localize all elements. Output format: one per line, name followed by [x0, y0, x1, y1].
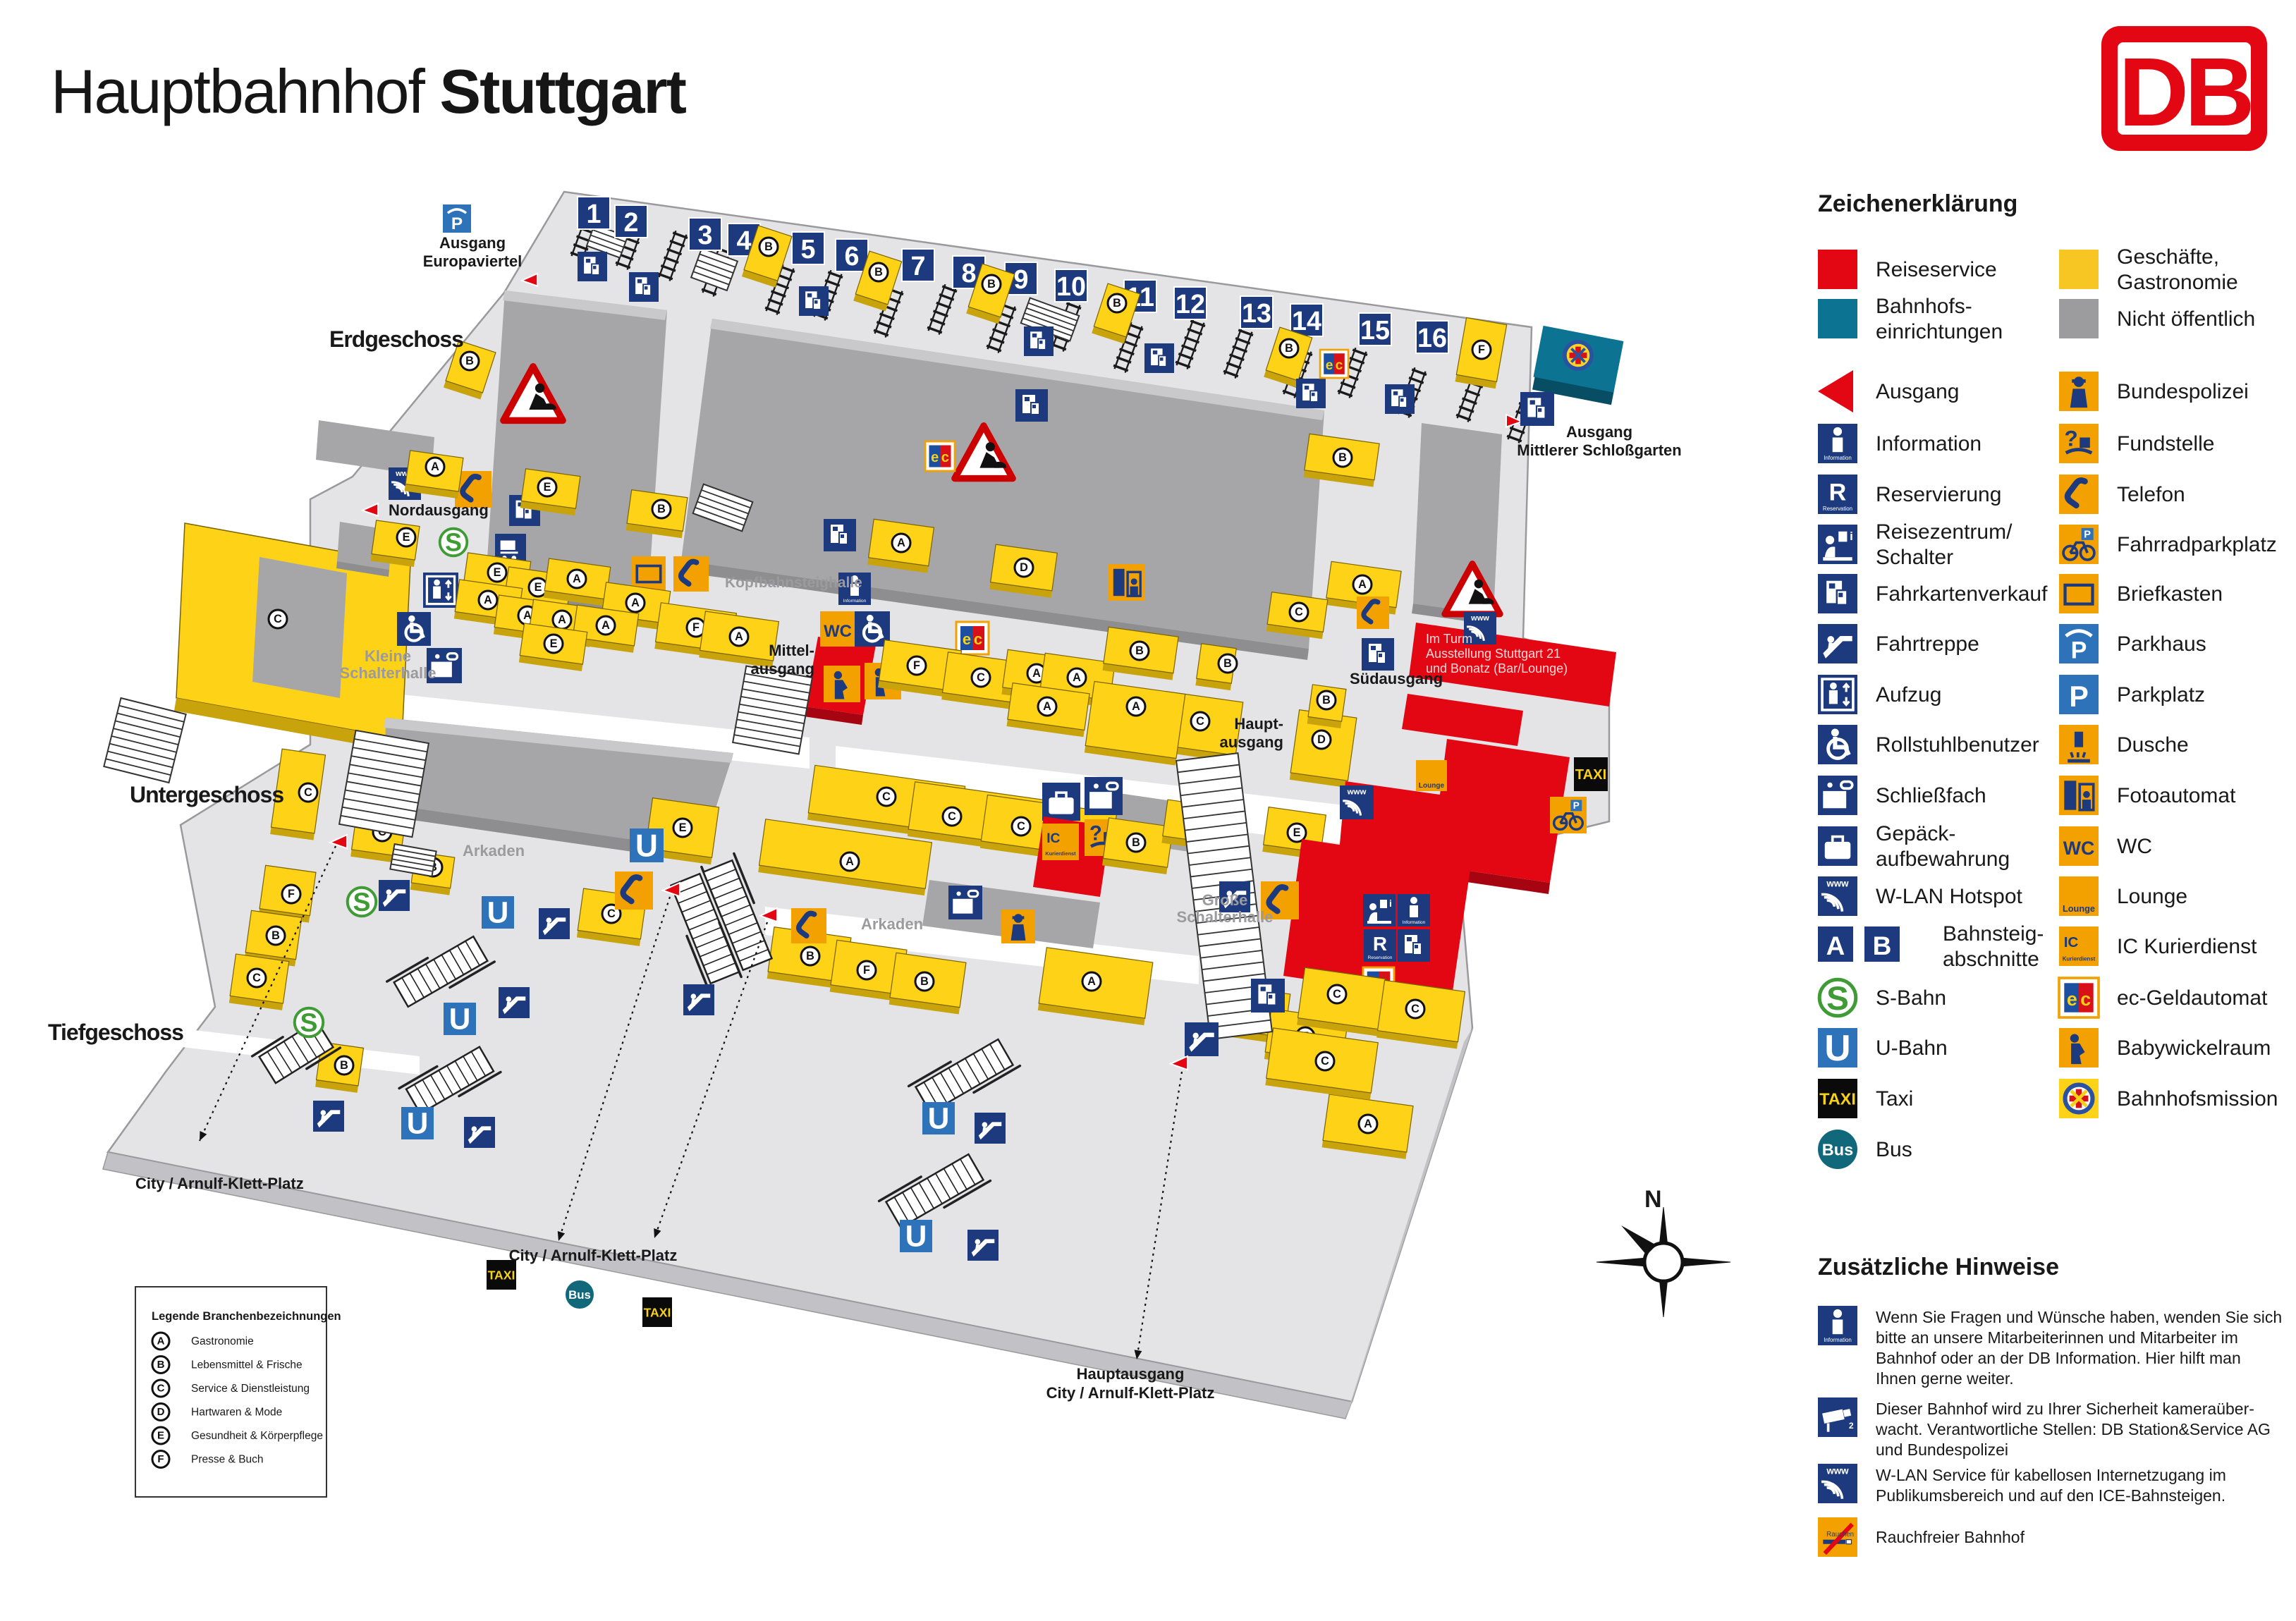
svg-text:TAXI: TAXI — [1575, 767, 1606, 783]
svg-text:Wenn Sie Fragen und Wünsche ha: Wenn Sie Fragen und Wünsche haben, wende… — [1876, 1308, 2282, 1326]
svg-text:abschnitte: abschnitte — [1943, 948, 2039, 971]
svg-text:B: B — [806, 950, 814, 962]
svg-text:?: ? — [2064, 426, 2077, 451]
svg-text:Ausgang: Ausgang — [439, 234, 506, 252]
svg-text:A: A — [1358, 578, 1367, 591]
svg-text:ec-Geldautomat: ec-Geldautomat — [2117, 986, 2268, 1010]
svg-text:B: B — [657, 503, 666, 515]
svg-text:S: S — [300, 1008, 318, 1037]
svg-text:14: 14 — [1292, 306, 1321, 336]
svg-text:Gesundheit & Körperpflege: Gesundheit & Körperpflege — [191, 1430, 323, 1442]
svg-text:B: B — [1285, 342, 1293, 355]
svg-text:www: www — [1470, 614, 1489, 623]
svg-text:A: A — [484, 594, 492, 606]
svg-text:A: A — [631, 597, 640, 609]
svg-text:C: C — [1017, 820, 1025, 833]
svg-text:D: D — [157, 1406, 165, 1418]
svg-text:TAXI: TAXI — [1819, 1089, 1856, 1108]
svg-text:Erdgeschoss: Erdgeschoss — [329, 326, 463, 352]
svg-text:B: B — [1338, 451, 1347, 464]
svg-text:C: C — [948, 810, 956, 823]
svg-text:A: A — [1364, 1118, 1372, 1130]
svg-text:E: E — [494, 566, 501, 579]
svg-text:Bus: Bus — [568, 1288, 591, 1302]
svg-text:E: E — [157, 1430, 164, 1442]
svg-text:City / Arnulf-Klett-Platz: City / Arnulf-Klett-Platz — [135, 1175, 304, 1192]
svg-text:Nordausgang: Nordausgang — [389, 501, 489, 519]
svg-text:Dusche: Dusche — [2117, 733, 2189, 757]
svg-text:E: E — [535, 581, 542, 594]
svg-text:C: C — [157, 1383, 165, 1395]
svg-text:Schalter: Schalter — [1876, 546, 1953, 569]
svg-text:IC Kurierdienst: IC Kurierdienst — [2117, 935, 2257, 958]
svg-text:F: F — [692, 621, 700, 634]
svg-text:A: A — [1073, 671, 1081, 684]
svg-text:Parkplatz: Parkplatz — [2117, 683, 2205, 706]
svg-text:F: F — [913, 659, 920, 672]
svg-text:N: N — [1644, 1186, 1662, 1213]
svg-text:B: B — [920, 975, 929, 988]
svg-text:S: S — [445, 529, 462, 557]
svg-text:C: C — [607, 907, 616, 920]
svg-text:P: P — [1573, 800, 1580, 811]
svg-text:E: E — [1293, 826, 1301, 839]
svg-text:Aufzug: Aufzug — [1876, 683, 1941, 706]
svg-text:B: B — [1223, 657, 1232, 670]
svg-text:Schließfach: Schließfach — [1876, 784, 1986, 807]
svg-text:Zusätzliche Hinweise: Zusätzliche Hinweise — [1818, 1254, 2059, 1280]
svg-text:ausgang: ausgang — [1220, 733, 1283, 751]
svg-text:E: E — [679, 821, 687, 834]
svg-text:TAXI: TAXI — [644, 1305, 671, 1319]
svg-text:und Bundespolizei: und Bundespolizei — [1876, 1440, 2008, 1459]
svg-text:c: c — [974, 630, 982, 648]
svg-text:A: A — [1826, 931, 1845, 960]
svg-text:Reiseservice: Reiseservice — [1876, 258, 1997, 281]
svg-text:Ihnen gerne weiter.: Ihnen gerne weiter. — [1876, 1369, 2014, 1388]
svg-text:Tiefgeschoss: Tiefgeschoss — [48, 1020, 183, 1045]
svg-text:S: S — [353, 887, 371, 917]
svg-text:U: U — [449, 1003, 471, 1036]
svg-text:Reisezentrum/: Reisezentrum/ — [1876, 520, 2013, 544]
svg-text:Untergeschoss: Untergeschoss — [130, 782, 283, 807]
svg-text:B: B — [157, 1359, 165, 1371]
svg-text:U: U — [407, 1107, 429, 1140]
svg-text:A: A — [431, 460, 439, 473]
svg-text:13: 13 — [1242, 298, 1271, 328]
svg-text:15: 15 — [1360, 315, 1390, 345]
svg-text:9: 9 — [1014, 264, 1029, 294]
svg-text:Information: Information — [1876, 432, 1981, 455]
svg-text:Nicht öffentlich: Nicht öffentlich — [2117, 307, 2255, 331]
svg-text:B: B — [987, 278, 996, 290]
svg-text:A: A — [573, 573, 581, 585]
svg-text:5: 5 — [801, 234, 816, 264]
svg-text:Taxi: Taxi — [1876, 1087, 1913, 1111]
svg-text:F: F — [1478, 343, 1485, 356]
svg-text:W-LAN Service für kabellosen I: W-LAN Service für kabellosen Internetzug… — [1876, 1466, 2226, 1484]
svg-text:Mittlerer Schloßgarten: Mittlerer Schloßgarten — [1517, 441, 1681, 459]
svg-text:einrichtungen: einrichtungen — [1876, 320, 2003, 343]
svg-text:A: A — [157, 1335, 165, 1347]
svg-text:D: D — [1317, 733, 1326, 746]
svg-text:ausgang: ausgang — [751, 660, 814, 678]
svg-text:C: C — [1196, 715, 1204, 728]
svg-text:Fotoautomat: Fotoautomat — [2117, 784, 2236, 807]
svg-text:A: A — [1043, 700, 1051, 713]
svg-text:A: A — [735, 630, 743, 643]
svg-text:A: A — [1087, 975, 1096, 988]
svg-text:e: e — [1326, 358, 1333, 373]
svg-text:16: 16 — [1417, 323, 1447, 353]
svg-text:Kopfbahnsteighalle: Kopfbahnsteighalle — [725, 575, 862, 591]
svg-text:U: U — [635, 828, 658, 863]
svg-text:Telefon: Telefon — [2117, 483, 2185, 506]
svg-text:Information: Information — [843, 599, 867, 604]
svg-text:Parkhaus: Parkhaus — [2117, 632, 2206, 656]
svg-text:B: B — [1113, 297, 1121, 310]
svg-text:U-Bahn: U-Bahn — [1876, 1036, 1948, 1060]
svg-text:Geschäfte,: Geschäfte, — [2117, 245, 2219, 269]
svg-text:Reservation: Reservation — [1368, 955, 1393, 960]
svg-text:Presse & Buch: Presse & Buch — [191, 1454, 264, 1466]
svg-text:?: ? — [1089, 821, 1102, 845]
svg-text:C: C — [304, 786, 312, 799]
svg-text:E: E — [403, 531, 410, 544]
svg-text:Reservierung: Reservierung — [1876, 483, 2001, 506]
svg-text:C: C — [1295, 606, 1303, 618]
svg-text:3: 3 — [698, 220, 713, 250]
svg-text:R: R — [1829, 479, 1847, 506]
svg-text:e: e — [963, 630, 971, 648]
svg-text:c: c — [2080, 989, 2091, 1010]
svg-text:City / Arnulf-Klett-Platz: City / Arnulf-Klett-Platz — [509, 1247, 678, 1264]
svg-text:2: 2 — [1849, 1421, 1854, 1431]
svg-text:e: e — [931, 450, 939, 465]
svg-text:B: B — [1135, 644, 1144, 657]
svg-text:P: P — [2069, 680, 2089, 713]
svg-text:B: B — [271, 929, 280, 942]
svg-text:A: A — [1032, 667, 1041, 680]
svg-text:Europaviertel: Europaviertel — [423, 252, 523, 270]
svg-text:C: C — [1321, 1055, 1329, 1068]
svg-text:P: P — [2071, 637, 2087, 664]
svg-text:Briefkasten: Briefkasten — [2117, 582, 2223, 606]
svg-text:Hauptbahnhof Stuttgart: Hauptbahnhof Stuttgart — [51, 56, 687, 126]
svg-text:B: B — [764, 240, 773, 253]
svg-text:B: B — [874, 266, 883, 279]
svg-text:12: 12 — [1176, 289, 1205, 319]
svg-text:10: 10 — [1056, 271, 1086, 301]
svg-text:B: B — [465, 355, 474, 367]
svg-text:WC: WC — [2063, 838, 2095, 859]
svg-text:W-LAN Hotspot: W-LAN Hotspot — [1876, 885, 2023, 908]
svg-text:Bahnhof oder an der DB Informa: Bahnhof oder an der DB Information. Hier… — [1876, 1349, 2241, 1367]
svg-text:Reservation: Reservation — [1823, 506, 1852, 512]
svg-text:U: U — [487, 896, 509, 929]
svg-text:Fundstelle: Fundstelle — [2117, 432, 2214, 455]
svg-text:R: R — [1373, 933, 1387, 955]
svg-text:7: 7 — [911, 251, 926, 281]
svg-text:Rollstuhlbenutzer: Rollstuhlbenutzer — [1876, 733, 2039, 757]
svg-text:B: B — [340, 1059, 348, 1072]
svg-text:F: F — [288, 888, 295, 900]
svg-text:IC: IC — [1046, 831, 1060, 846]
svg-text:Bahnsteig-: Bahnsteig- — [1943, 922, 2044, 946]
svg-text:Bus: Bus — [1876, 1138, 1912, 1161]
svg-text:S: S — [1826, 980, 1849, 1017]
svg-text:e: e — [2067, 989, 2077, 1010]
svg-text:Kurierdienst: Kurierdienst — [1045, 850, 1076, 857]
svg-text:Arkaden: Arkaden — [861, 915, 923, 933]
svg-text:Babywickelraum: Babywickelraum — [2117, 1036, 2271, 1060]
svg-text:Große: Große — [1202, 891, 1248, 909]
svg-text:Kleine: Kleine — [365, 647, 411, 665]
svg-text:B: B — [1873, 931, 1892, 960]
svg-text:B: B — [1322, 694, 1331, 706]
svg-text:Lounge: Lounge — [2117, 885, 2187, 908]
svg-text:Zeichenerklärung: Zeichenerklärung — [1818, 190, 2017, 217]
svg-text:Gastronomie: Gastronomie — [2117, 271, 2238, 294]
svg-text:D: D — [1020, 561, 1028, 574]
svg-text:Fahrradparkplatz: Fahrradparkplatz — [2117, 533, 2277, 556]
svg-text:Rauchen: Rauchen — [1826, 1531, 1854, 1539]
svg-text:C: C — [1411, 1003, 1419, 1015]
svg-text:A: A — [1132, 700, 1140, 713]
svg-text:WC: WC — [824, 622, 852, 641]
svg-text:Schalterhalle: Schalterhalle — [340, 664, 436, 682]
svg-text:Gastronomie: Gastronomie — [191, 1335, 254, 1347]
svg-text:Im Turm: Im Turm — [1426, 632, 1472, 646]
svg-text:P: P — [2084, 529, 2091, 540]
svg-text:F: F — [157, 1453, 164, 1465]
svg-text:U: U — [928, 1102, 950, 1135]
svg-text:S-Bahn: S-Bahn — [1876, 986, 1946, 1010]
svg-text:Information: Information — [1403, 920, 1426, 925]
svg-text:4: 4 — [737, 226, 752, 255]
svg-text:Fahrkartenverkauf: Fahrkartenverkauf — [1876, 582, 2048, 606]
svg-text:Bus: Bus — [1822, 1140, 1853, 1158]
svg-text:bitte an unsere Mitarbeiterinn: bitte an unsere Mitarbeiterinnen und Mit… — [1876, 1328, 2238, 1347]
svg-text:www: www — [1826, 879, 1849, 889]
svg-text:Service & Dienstleistung: Service & Dienstleistung — [191, 1383, 310, 1395]
svg-text:Ausstellung Stuttgart 21: Ausstellung Stuttgart 21 — [1426, 647, 1561, 661]
svg-text:Bahnhofsmission: Bahnhofsmission — [2117, 1087, 2278, 1111]
svg-text:Lounge: Lounge — [2063, 903, 2095, 914]
svg-text:B: B — [1132, 836, 1140, 849]
svg-text:DB: DB — [2118, 38, 2251, 147]
svg-text:P: P — [451, 214, 463, 233]
svg-text:U: U — [905, 1220, 927, 1253]
svg-text:aufbewahrung: aufbewahrung — [1876, 848, 2010, 871]
svg-text:WC: WC — [2117, 835, 2152, 858]
svg-text:c: c — [941, 450, 949, 465]
svg-text:F: F — [863, 964, 870, 977]
svg-text:C: C — [252, 972, 261, 984]
svg-text:C: C — [977, 671, 985, 684]
svg-text:1: 1 — [587, 199, 602, 228]
svg-text:Haupt-: Haupt- — [1234, 715, 1283, 733]
svg-text:Bahnhofs-: Bahnhofs- — [1876, 295, 1972, 318]
svg-text:E: E — [544, 481, 551, 494]
svg-text:Arkaden: Arkaden — [463, 842, 525, 860]
svg-text:Kurierdienst: Kurierdienst — [2063, 956, 2096, 962]
svg-text:i: i — [1850, 530, 1853, 543]
svg-text:Information: Information — [1824, 455, 1852, 461]
svg-text:C: C — [274, 613, 282, 625]
svg-text:City / Arnulf-Klett-Platz: City / Arnulf-Klett-Platz — [1046, 1384, 1215, 1402]
svg-text:Dieser Bahnhof wird zu Ihrer S: Dieser Bahnhof wird zu Ihrer Sicherheit … — [1876, 1400, 2254, 1418]
svg-text:i: i — [1389, 898, 1392, 909]
svg-text:Legende Branchenbezeichnungen: Legende Branchenbezeichnungen — [152, 1310, 341, 1323]
svg-text:Gepäck-: Gepäck- — [1876, 822, 1955, 845]
svg-text:Schalterhalle: Schalterhalle — [1177, 908, 1274, 926]
svg-text:Lebensmittel & Frische: Lebensmittel & Frische — [191, 1359, 303, 1371]
svg-text:Hauptausgang: Hauptausgang — [1077, 1365, 1185, 1383]
svg-text:www: www — [1826, 1466, 1849, 1476]
svg-text:Hartwaren & Mode: Hartwaren & Mode — [191, 1407, 282, 1419]
svg-text:Publikumsbereich und auf den I: Publikumsbereich und auf den ICE-Bahnste… — [1876, 1486, 2225, 1505]
svg-text:c: c — [1336, 358, 1343, 373]
svg-text:A: A — [845, 855, 854, 868]
svg-text:E: E — [550, 637, 558, 650]
svg-text:Bundespolizei: Bundespolizei — [2117, 380, 2249, 403]
svg-text:A: A — [897, 537, 905, 549]
svg-text:2: 2 — [624, 207, 639, 237]
svg-text:U: U — [1824, 1027, 1850, 1068]
svg-text:Ausgang: Ausgang — [1566, 423, 1632, 441]
svg-text:6: 6 — [845, 241, 860, 271]
svg-text:A: A — [602, 619, 610, 632]
svg-text:www: www — [1347, 788, 1367, 797]
svg-text:Lounge: Lounge — [1419, 782, 1445, 790]
svg-text:8: 8 — [962, 258, 977, 288]
svg-text:C: C — [882, 790, 891, 803]
svg-text:Mittel-: Mittel- — [769, 642, 814, 659]
svg-text:C: C — [1333, 988, 1341, 1001]
svg-text:TAXI: TAXI — [488, 1268, 515, 1282]
svg-text:Fahrtreppe: Fahrtreppe — [1876, 632, 1979, 656]
svg-text:Ausgang: Ausgang — [1876, 380, 1959, 403]
svg-text:wacht. Verantwortliche Stellen: wacht. Verantwortliche Stellen: DB Stati… — [1875, 1420, 2271, 1438]
svg-text:und Bonatz (Bar/Lounge): und Bonatz (Bar/Lounge) — [1426, 661, 1568, 675]
svg-text:IC: IC — [2064, 934, 2079, 950]
svg-text:Information: Information — [1824, 1337, 1852, 1343]
svg-text:Rauchfreier Bahnhof: Rauchfreier Bahnhof — [1876, 1528, 2025, 1546]
svg-text:A: A — [558, 613, 566, 626]
